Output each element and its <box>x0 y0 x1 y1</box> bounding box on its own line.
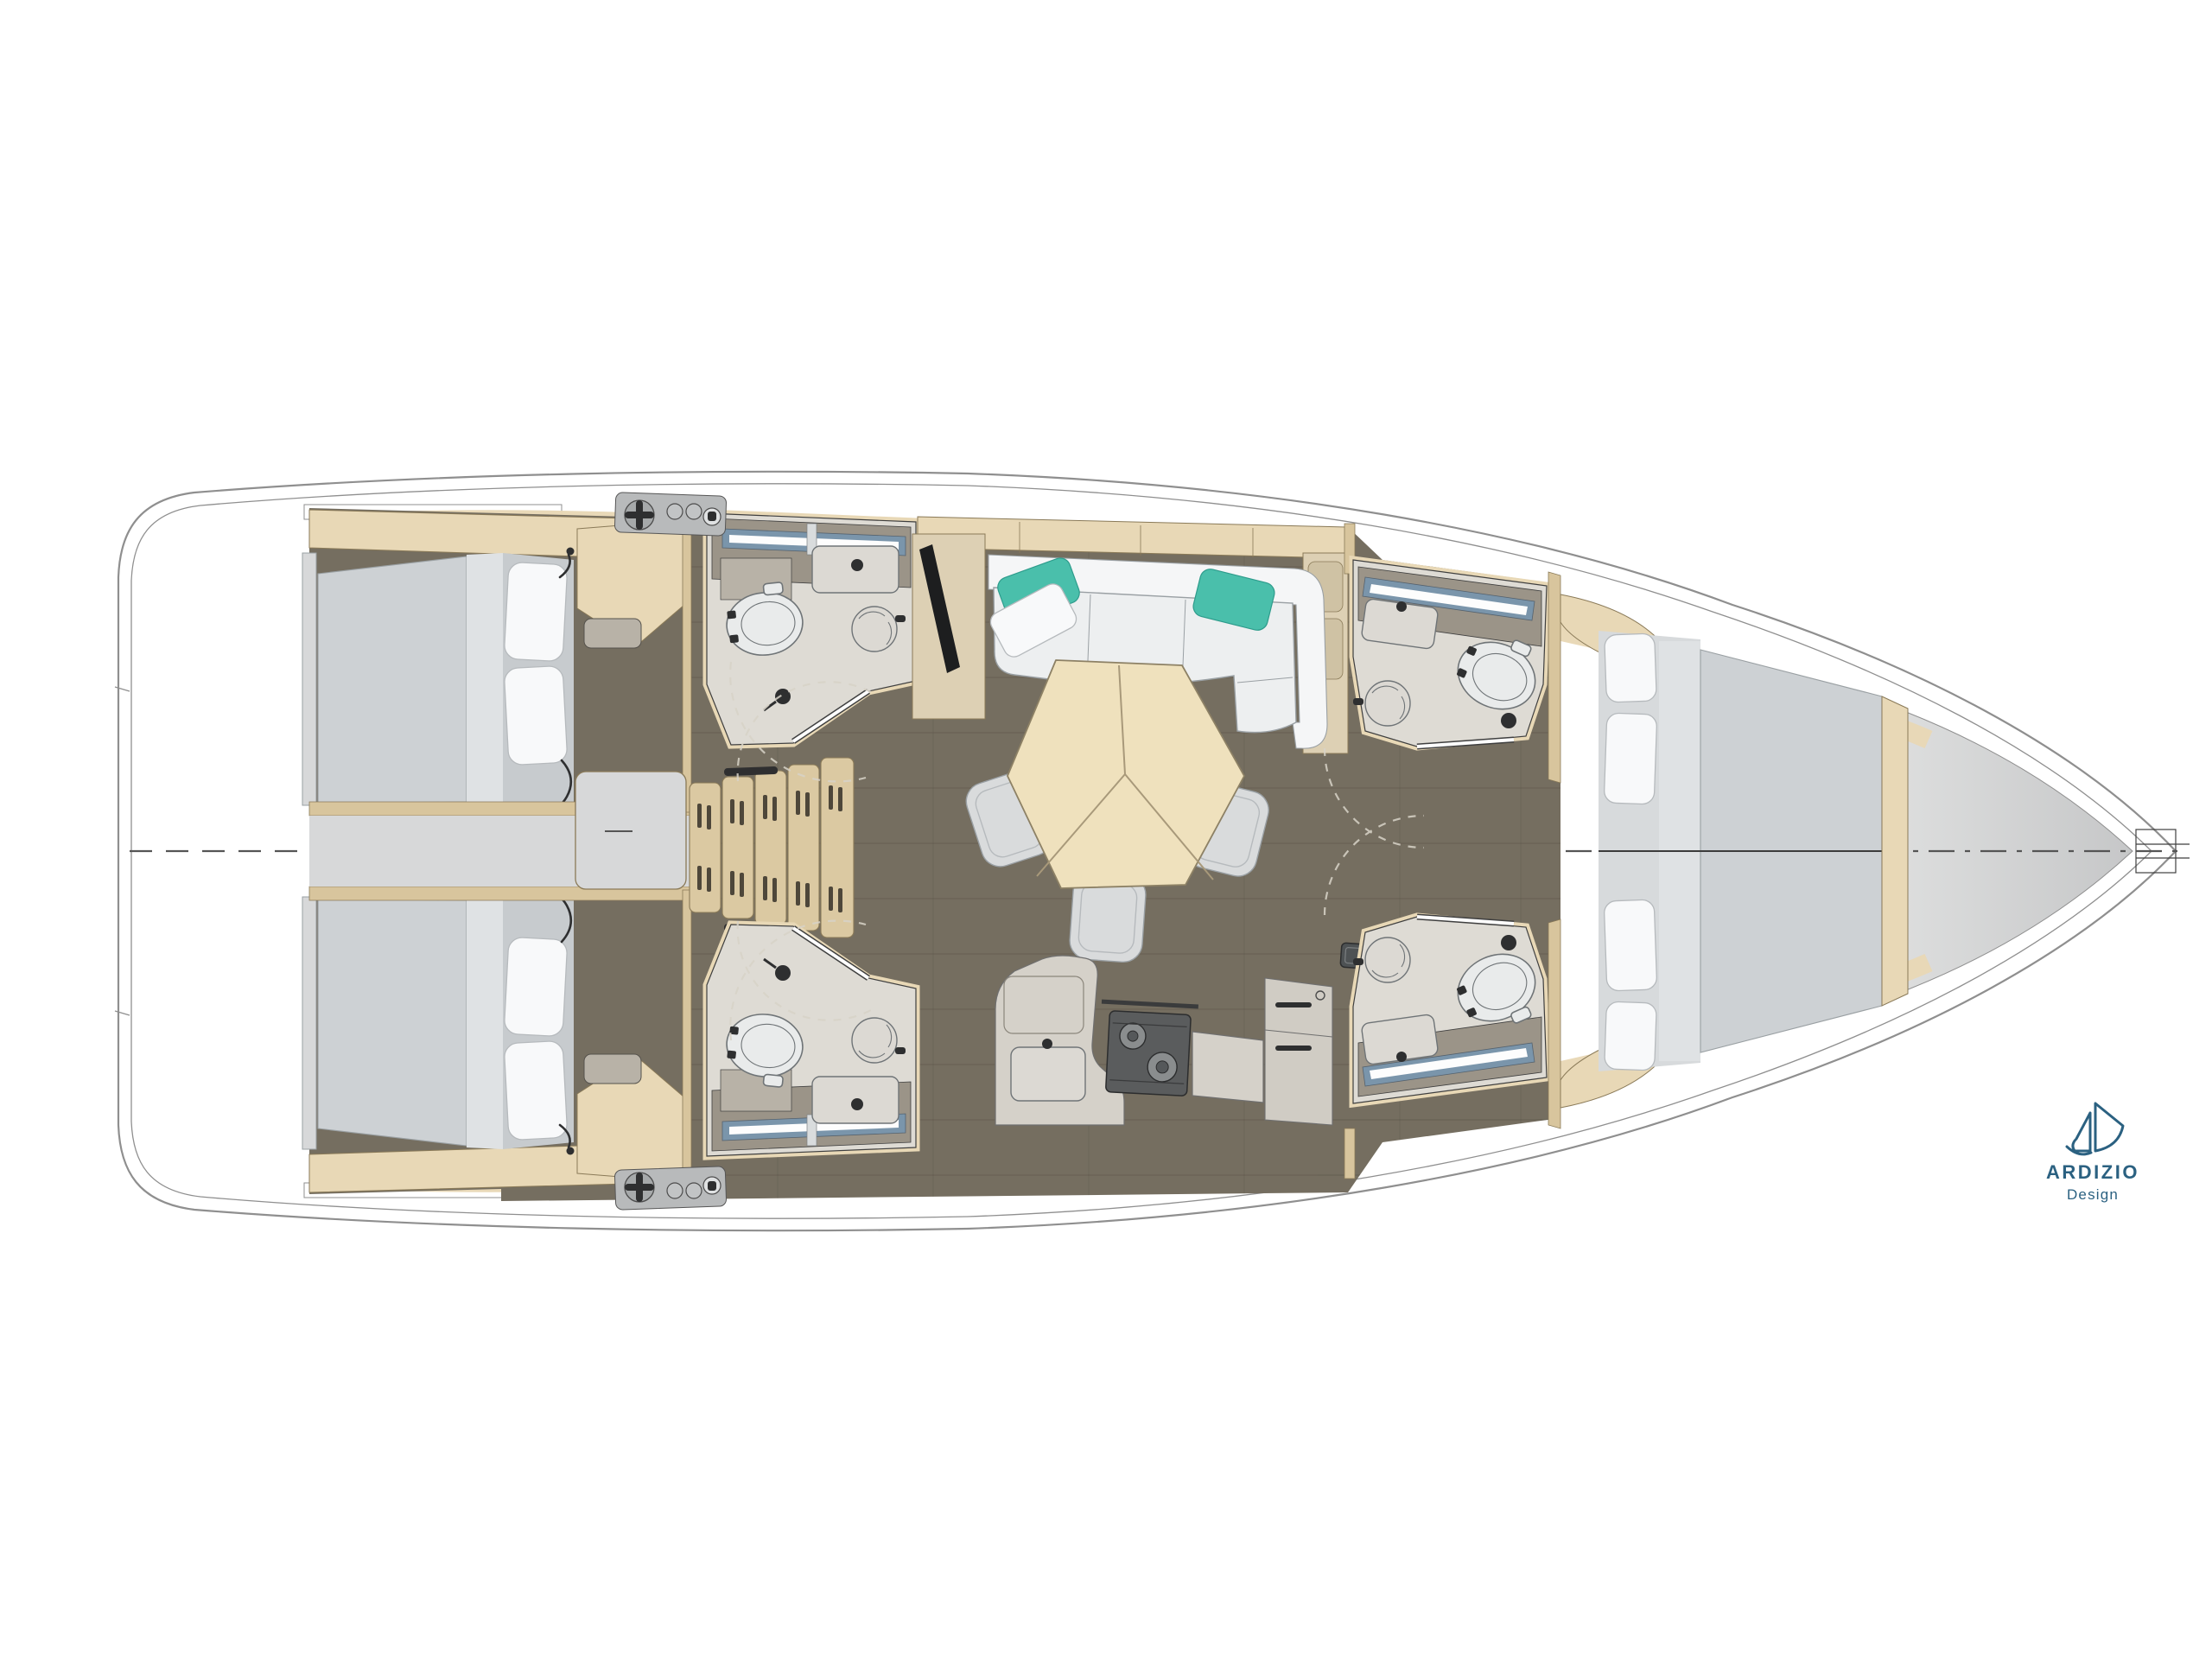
deck-fitting-cap <box>708 512 716 521</box>
galley-sink <box>1011 1047 1085 1101</box>
drawer-front <box>584 619 641 648</box>
fore-head-port <box>1353 560 1549 747</box>
cabin-wall <box>683 520 691 812</box>
stair-tread <box>788 765 819 931</box>
yacht-floor-plan: ARDIZIO Design <box>0 0 2212 1659</box>
yacht-floor-plan-page: ARDIZIO Design <box>0 0 2212 1659</box>
fridge-handle <box>1275 1046 1312 1051</box>
sailboat-icon <box>2067 1103 2123 1154</box>
forward-bulkhead <box>1548 919 1560 1128</box>
berth-mattress-head-strip <box>467 553 503 802</box>
fore-head-starboard <box>1353 917 1549 1103</box>
logo-brand-text: ARDIZIO <box>2046 1161 2139 1183</box>
pillow <box>1604 899 1657 991</box>
pillow <box>1605 633 1657 702</box>
instrument-dial <box>686 504 702 519</box>
deck-gear-panel-port <box>614 493 727 536</box>
companionway-stairs <box>690 758 854 938</box>
forepeak-trim <box>1882 696 1908 1006</box>
stove <box>1097 1001 1198 1096</box>
berth-mattress <box>318 556 467 804</box>
pillow <box>504 562 568 661</box>
stair-tread <box>755 771 786 925</box>
ardizio-logo: ARDIZIO Design <box>2046 1103 2139 1203</box>
counter-extension <box>1192 1032 1263 1103</box>
aft-cabin-starboard <box>302 887 691 1194</box>
faucet <box>1396 601 1407 612</box>
berth-foot-locker <box>302 553 316 805</box>
deck-gear-panel-starboard <box>614 1166 727 1210</box>
galley-faucet <box>1042 1039 1052 1049</box>
instrument-dial <box>667 504 683 519</box>
aft-cabin-port <box>302 508 691 816</box>
stair-tread <box>690 783 721 912</box>
reading-light <box>567 548 575 556</box>
stair-tread <box>821 758 854 938</box>
fridge-handle <box>1275 1002 1312 1007</box>
pillow <box>1605 1001 1657 1071</box>
pillow <box>504 665 568 765</box>
partition-wall <box>1344 1128 1355 1179</box>
faucet <box>851 559 863 571</box>
fridge-cabinet <box>1265 978 1332 1125</box>
pillow <box>1604 713 1657 804</box>
shower-mixer <box>1501 713 1516 728</box>
stair-tread <box>722 777 753 918</box>
winch <box>625 500 654 530</box>
forward-bulkhead <box>1548 572 1560 783</box>
logo-subtitle-text: Design <box>2067 1186 2119 1203</box>
